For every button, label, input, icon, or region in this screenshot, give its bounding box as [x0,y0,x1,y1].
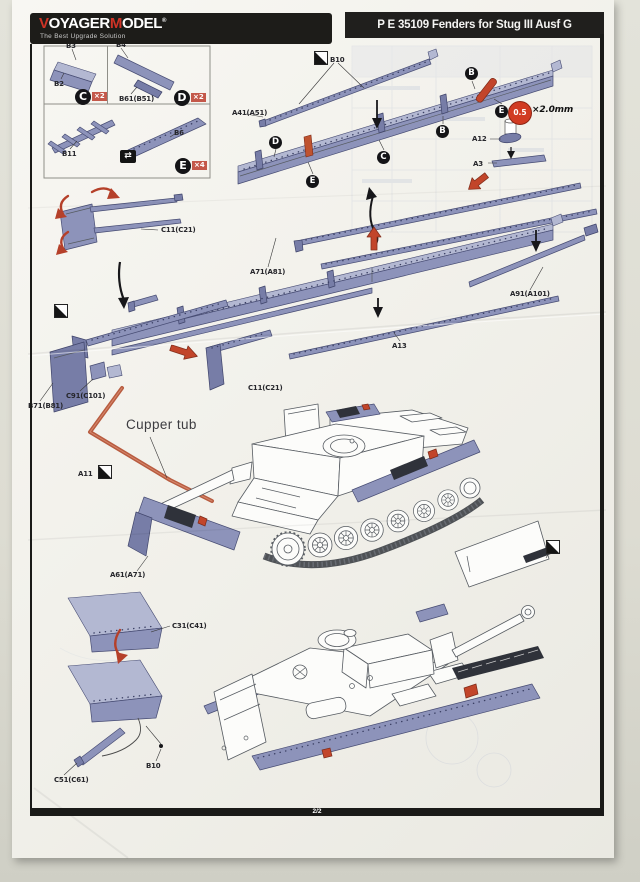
sheet-title: P E 35109 Fenders for Stug III Ausf G [345,12,604,38]
callout-c: C [377,151,390,164]
page-number: 2/2 [312,808,321,815]
part-label-c11-jack: C11(C21) [161,226,196,234]
bend-icon [546,540,560,554]
side-skirt-plate [455,521,559,587]
bend-icon [54,304,68,318]
transfer-icon: ⇄ [120,150,136,163]
part-label-b61: B61(B51) [119,95,154,103]
page-border-right [600,34,604,816]
page-number-bar: 2/2 [30,808,604,816]
part-label-c91: C91(C101) [66,392,105,400]
sprue-letter-d: D [174,90,190,106]
qty-badge-c: ×2 [92,92,107,101]
logo-letter-m: M [110,15,122,32]
part-label-a91: A91(A101) [510,290,550,298]
qty-badge-d: ×2 [191,93,206,102]
registered-mark: ® [162,18,166,24]
red-bend-arrows [55,188,128,664]
callout-b-1: B [465,67,478,80]
logo-letter-v: V [39,15,49,32]
part-label-c51: C51(C61) [54,776,89,784]
callout-b-2: B [436,125,449,138]
copper-wire [90,388,212,501]
part-label-c11-corner: C11(C21) [248,384,283,392]
sprue-letter-c: C [75,89,91,105]
part-label-a3: A3 [473,160,483,168]
mudflap-cluster [68,592,163,767]
middle-fender-assembly [112,214,598,359]
wire-diameter-marker: 0.5 [508,101,532,125]
bend-icon [314,51,328,65]
voyager-logo-bar: VOYAGERMODEL® The Best Upgrade Solution [30,13,332,44]
callout-e-1: E [306,175,319,188]
tank-illustration-2 [204,604,544,770]
part-label-a13: A13 [392,342,407,350]
wire-length-label: ×2.0mm [532,105,573,115]
part-label-a12: A12 [472,135,487,143]
part-label-c31: C31(C41) [172,622,207,630]
part-label-a71: A71(A81) [250,268,285,276]
sprue-letter-e: E [175,158,191,174]
part-label-b11: B11 [62,150,76,158]
bend-icon [98,465,112,479]
scanned-instruction-sheet: VOYAGERMODEL® The Best Upgrade Solution … [0,0,640,882]
callout-e-2: E [495,105,508,118]
part-label-a41: A41(A51) [232,109,267,117]
part-label-a11: A11 [78,470,93,478]
logo-tagline: The Best Upgrade Solution [40,33,126,40]
page-border-left [30,44,32,816]
qty-badge-e: ×4 [192,161,207,170]
part-label-b10-flap: B10 [146,762,160,770]
part-label-b71: B71(B81) [28,402,63,410]
part-label-b6: B6 [174,129,184,137]
voyager-logo: VOYAGERMODEL® [39,15,166,32]
callout-d: D [269,136,282,149]
copper-tube-note: Cupper tub [126,417,197,432]
part-label-b10: B10 [330,56,344,64]
part-label-b2: B2 [54,80,64,88]
diagram-artwork [0,0,640,882]
part-label-a61: A61(A71) [110,571,145,579]
